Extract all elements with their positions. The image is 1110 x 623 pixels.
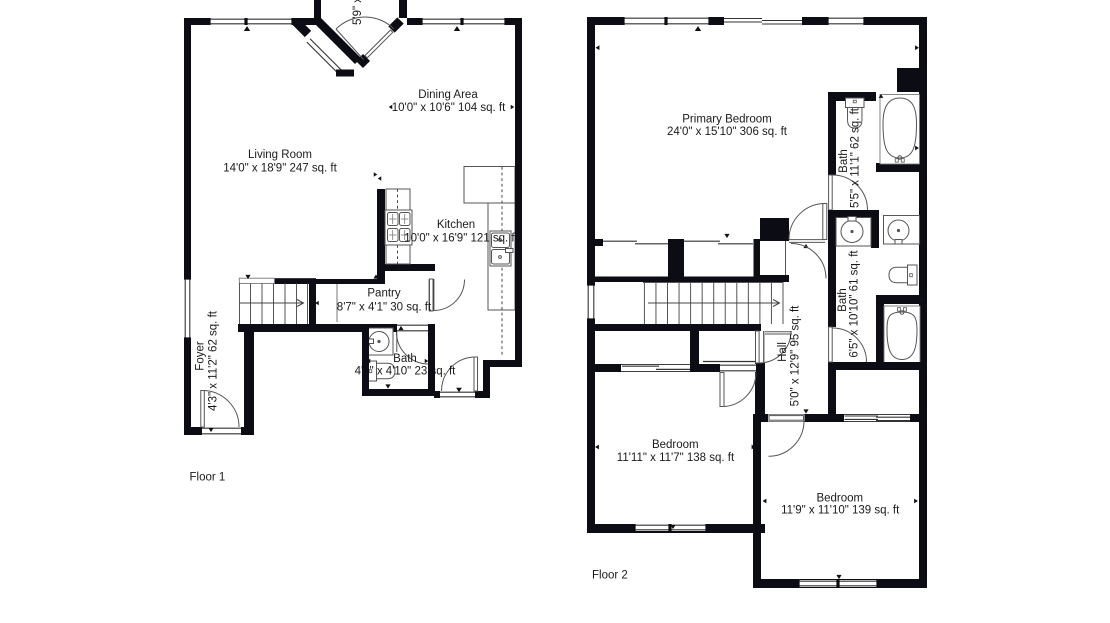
svg-text:Bath: Bath xyxy=(393,353,417,365)
svg-text:11'11" x 11'7" 138 sq. ft: 11'11" x 11'7" 138 sq. ft xyxy=(617,452,735,464)
svg-text:4'9" x 4'10" 23 sq. ft: 4'9" x 4'10" 23 sq. ft xyxy=(355,366,457,378)
svg-text:Bedroom: Bedroom xyxy=(652,439,699,451)
svg-text:Bedroom: Bedroom xyxy=(816,493,863,505)
svg-text:5'5" x 11'1" 62 sq. ft: 5'5" x 11'1" 62 sq. ft xyxy=(850,107,862,208)
svg-text:Pantry: Pantry xyxy=(367,288,400,300)
svg-text:Living Room: Living Room xyxy=(248,149,312,161)
svg-text:Bath: Bath xyxy=(838,149,850,173)
svg-text:11'9" x 11'10" 139 sq. ft: 11'9" x 11'10" 139 sq. ft xyxy=(781,505,900,517)
svg-text:Hall: Hall xyxy=(777,342,789,362)
svg-text:10'0" x 10'6" 104 sq. ft: 10'0" x 10'6" 104 sq. ft xyxy=(392,102,506,114)
svg-text:Bath: Bath xyxy=(837,288,849,312)
svg-text:Dining Area: Dining Area xyxy=(418,89,478,101)
svg-text:5'0" x 12'9" 95 sq. ft: 5'0" x 12'9" 95 sq. ft xyxy=(790,305,802,407)
svg-text:4'3" x 11'2" 62 sq. ft: 4'3" x 11'2" 62 sq. ft xyxy=(208,310,220,411)
svg-text:Floor 1: Floor 1 xyxy=(190,472,226,484)
svg-text:8'7" x 4'1" 30 sq. ft: 8'7" x 4'1" 30 sq. ft xyxy=(337,301,432,313)
svg-text:Foyer: Foyer xyxy=(195,341,207,371)
svg-text:6'5" x 10'10" 61 sq. ft: 6'5" x 10'10" 61 sq. ft xyxy=(849,250,861,358)
svg-text:5'9" x 5'5" 17 sq. ft: 5'9" x 5'5" 17 sq. ft xyxy=(352,0,364,25)
svg-text:10'0" x 16'9" 121 sq. ft: 10'0" x 16'9" 121 sq. ft xyxy=(404,233,518,245)
svg-text:14'0" x 18'9" 247 sq. ft: 14'0" x 18'9" 247 sq. ft xyxy=(223,163,337,175)
svg-text:Kitchen: Kitchen xyxy=(437,219,475,231)
svg-text:Floor 2: Floor 2 xyxy=(592,570,628,582)
svg-text:Primary Bedroom: Primary Bedroom xyxy=(682,114,771,126)
svg-text:24'0" x 15'10" 306 sq. ft: 24'0" x 15'10" 306 sq. ft xyxy=(667,126,788,138)
